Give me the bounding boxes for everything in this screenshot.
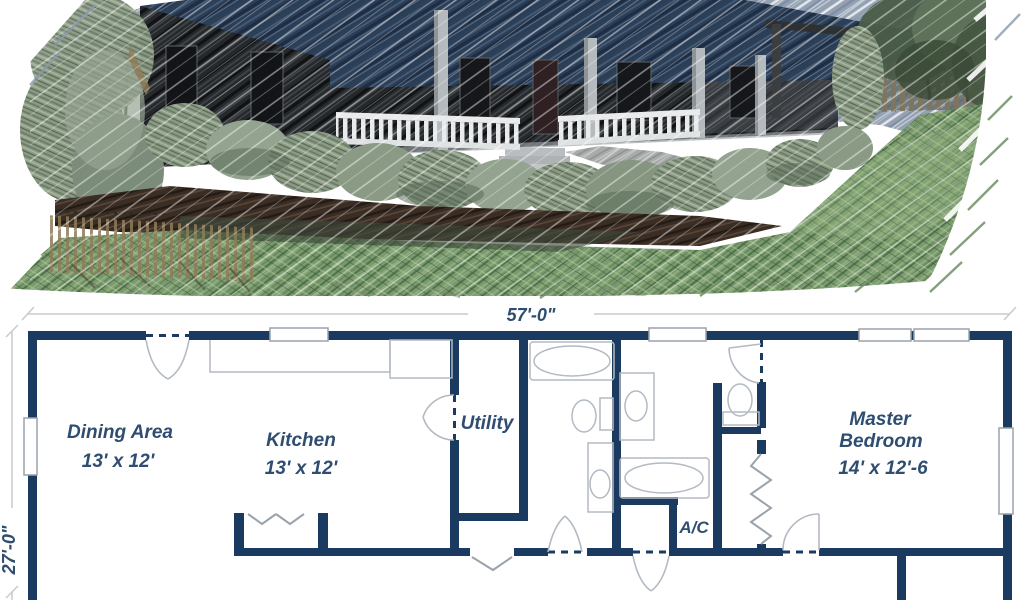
overall-width-dimension: 57'-0": [507, 305, 556, 325]
screenshot-root: 57'-0" 27'-0": [0, 0, 1024, 600]
label-master-dims: 14' x 12'-6: [838, 458, 928, 479]
sink-2: [625, 391, 647, 421]
bedroom-door-swing: [633, 556, 651, 591]
closet-bifold-1: [248, 514, 276, 524]
wc-door-leaf: [729, 344, 761, 348]
floor-plan: 57'-0" 27'-0": [0, 300, 1024, 600]
dimension-lines: [6, 307, 1016, 600]
window-top-2: [649, 328, 706, 341]
sink-1: [590, 470, 610, 498]
label-dining-area: Dining Area: [67, 422, 173, 443]
window-right: [999, 428, 1013, 514]
window-top-3: [859, 329, 911, 341]
label-ac: A/C: [678, 518, 709, 537]
kitchen-appliance: [390, 340, 452, 378]
bathtub-2: [620, 458, 709, 498]
label-kitchen-dims: 13' x 12': [265, 458, 339, 479]
label-dining-dims: 13' x 12': [82, 451, 156, 472]
window-top-4: [914, 329, 969, 341]
master-closet-bifold: [751, 454, 771, 544]
kitchen-counter: [210, 340, 390, 372]
label-kitchen: Kitchen: [266, 430, 336, 451]
house-rendering-image: [0, 0, 1024, 300]
overall-depth-dimension: 27'-0": [0, 525, 19, 575]
label-master-1: Master: [849, 409, 912, 430]
toilet-1-tank: [600, 398, 613, 430]
utility-door-swing: [423, 395, 454, 417]
toilet-2-tank: [723, 412, 759, 425]
label-master-2: Bedroom: [839, 431, 923, 452]
sketch-texture-overlay: [30, 0, 1010, 300]
window-left: [24, 418, 37, 475]
toilet-2: [728, 384, 752, 416]
bathtub-1: [530, 342, 614, 380]
front-door-swing: [146, 340, 168, 379]
toilet-1: [572, 400, 596, 432]
label-utility: Utility: [461, 413, 515, 434]
hall-bifold: [472, 557, 512, 570]
bath-door-swing: [548, 516, 565, 552]
window-top-1: [270, 328, 328, 341]
